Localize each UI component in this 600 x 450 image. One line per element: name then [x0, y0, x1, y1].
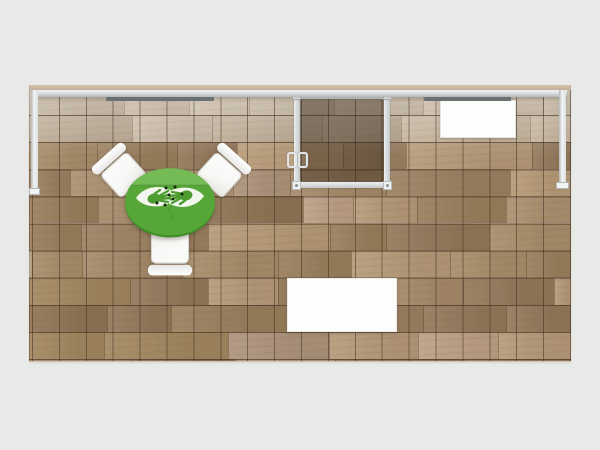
floor-plank	[29, 196, 98, 223]
glass-room-tint	[299, 98, 385, 183]
door-handle-inner-icon	[298, 152, 308, 168]
glass-storage-room	[294, 93, 390, 188]
floor-plank	[131, 359, 235, 361]
floor-plank	[32, 251, 83, 278]
floor-plank	[387, 278, 463, 305]
floor-plank	[29, 142, 97, 169]
floor-plank	[417, 196, 505, 223]
floor-plank	[171, 305, 293, 332]
left-return-rail	[31, 90, 38, 190]
floor-plank	[506, 196, 571, 223]
floor-plank	[130, 278, 208, 305]
right-return-rail	[559, 90, 566, 184]
reception-counter	[287, 278, 397, 332]
glass-wall-bottom	[294, 182, 390, 188]
booth-floor	[29, 85, 571, 362]
floor-plank	[107, 305, 171, 332]
floor-plank	[418, 332, 498, 359]
glass-wall-left	[294, 93, 300, 188]
floor-plank	[228, 332, 329, 359]
floor-plank	[406, 142, 531, 169]
floor-plank	[330, 224, 386, 251]
door-handle-outer-icon	[287, 152, 297, 168]
light-bar-right	[424, 97, 511, 101]
floor-plank	[329, 332, 418, 359]
floor-plank	[278, 251, 351, 278]
floor-plank	[423, 305, 506, 332]
floor-plank	[182, 251, 277, 278]
glass-wall-right	[384, 93, 390, 188]
floor-plank	[463, 278, 554, 305]
light-bar-left	[106, 97, 214, 101]
floor-plank	[353, 196, 418, 223]
floor-plank	[29, 332, 104, 359]
floor-plank	[29, 224, 81, 251]
floor-plank	[386, 224, 489, 251]
floor-plank	[464, 359, 571, 361]
floor-plank	[335, 359, 464, 361]
floor-plank	[235, 359, 335, 361]
floor-plank	[29, 278, 130, 305]
floor-plank	[303, 196, 353, 223]
floor-plank	[526, 251, 571, 278]
floor-plank	[208, 224, 330, 251]
floor-plank	[29, 305, 107, 332]
floor-plank	[489, 224, 571, 251]
floor-plank	[29, 115, 132, 142]
floor-plank	[208, 278, 278, 305]
floor-plank	[450, 251, 526, 278]
left-rail-endcap	[29, 188, 40, 195]
back-wall-rail	[31, 90, 567, 97]
round-logo-table	[124, 166, 216, 238]
floor-plank	[104, 332, 227, 359]
floor-plank	[498, 332, 571, 359]
floor-plank	[554, 278, 571, 305]
floor-plank	[132, 115, 212, 142]
glass-corner-connector	[383, 181, 392, 190]
floor-plank	[351, 251, 450, 278]
floor-plank	[29, 359, 131, 361]
floor-plank	[506, 305, 571, 332]
glass-corner-connector	[292, 181, 301, 190]
render-canvas	[0, 0, 600, 450]
floor-plank	[386, 169, 510, 196]
chair-backrest	[148, 265, 193, 276]
wall-monitor	[440, 100, 516, 138]
right-rail-endcap	[556, 182, 569, 189]
